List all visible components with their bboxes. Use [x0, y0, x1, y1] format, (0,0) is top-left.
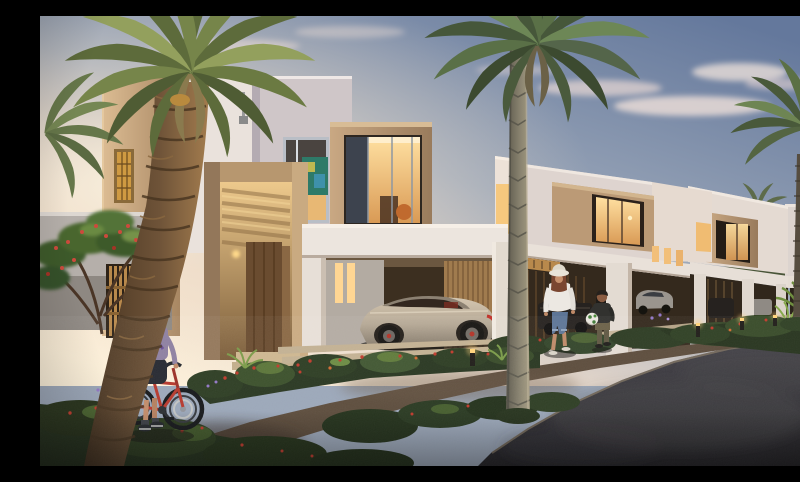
dusk-townhouse-rendering: [40, 16, 800, 466]
vignette: [40, 16, 800, 466]
